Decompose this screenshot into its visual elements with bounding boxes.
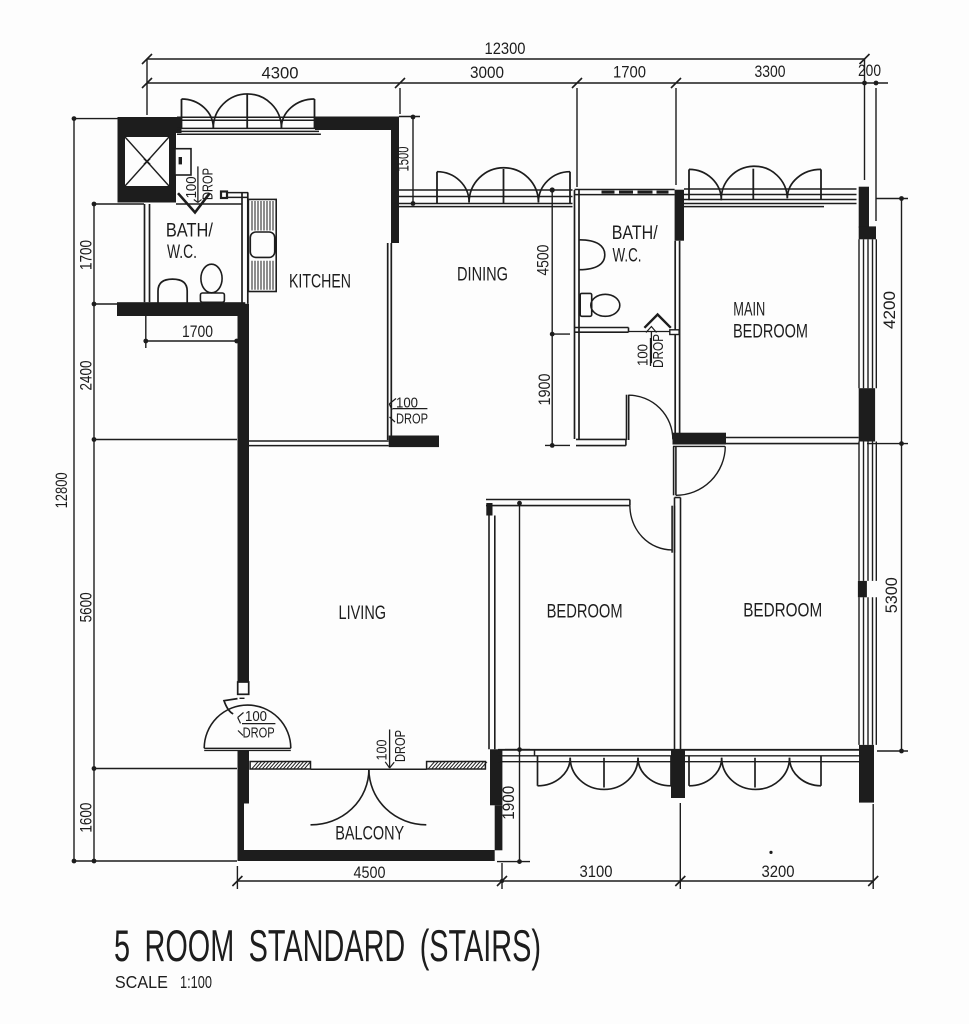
svg-text:BATH/: BATH/	[612, 222, 658, 244]
svg-text:4500: 4500	[535, 245, 553, 276]
svg-text:1600: 1600	[78, 803, 96, 833]
svg-text:3300: 3300	[755, 63, 786, 81]
svg-text:1700: 1700	[182, 323, 213, 341]
svg-text:12300: 12300	[485, 40, 526, 58]
svg-text:BEDROOM: BEDROOM	[743, 600, 822, 622]
svg-text:4500: 4500	[354, 864, 386, 882]
svg-text:BEDROOM: BEDROOM	[547, 601, 623, 623]
svg-text:MAIN: MAIN	[733, 299, 765, 321]
svg-text:BEDROOM: BEDROOM	[733, 320, 808, 342]
svg-text:SCALE: SCALE	[115, 972, 168, 992]
svg-text:1:100: 1:100	[180, 972, 212, 992]
svg-text:BATH/: BATH/	[166, 220, 213, 242]
svg-text:2400: 2400	[78, 361, 96, 391]
svg-text:DINING: DINING	[457, 264, 508, 286]
svg-text:100: 100	[635, 344, 652, 366]
svg-text:4200: 4200	[881, 291, 899, 329]
svg-text:3100: 3100	[580, 863, 613, 881]
svg-text:4300: 4300	[262, 65, 299, 83]
svg-text:3000: 3000	[470, 64, 504, 82]
svg-text:200: 200	[858, 62, 881, 80]
svg-text:DROP: DROP	[243, 725, 275, 742]
svg-text:5 ROOM STANDARD (STAIRS): 5 ROOM STANDARD (STAIRS)	[114, 922, 541, 971]
svg-text:5300: 5300	[883, 577, 901, 613]
svg-text:100: 100	[374, 740, 391, 761]
svg-text:DROP: DROP	[200, 168, 217, 200]
svg-text:DROP: DROP	[392, 730, 409, 762]
svg-text:3200: 3200	[762, 863, 795, 881]
svg-text:100: 100	[245, 708, 267, 725]
svg-text:W.C.: W.C.	[613, 245, 642, 267]
svg-text:1700: 1700	[613, 64, 646, 82]
svg-text:W.C.: W.C.	[167, 241, 197, 263]
svg-text:DROP: DROP	[650, 334, 667, 368]
svg-text:5600: 5600	[78, 592, 96, 622]
svg-text:1700: 1700	[78, 240, 96, 270]
svg-text:1900: 1900	[536, 374, 554, 406]
svg-text:12800: 12800	[53, 472, 71, 508]
svg-text:1900: 1900	[500, 786, 518, 820]
svg-text:DROP: DROP	[396, 411, 428, 428]
svg-text:BALCONY: BALCONY	[335, 823, 404, 845]
svg-text:1500: 1500	[395, 147, 413, 172]
svg-text:KITCHEN: KITCHEN	[289, 271, 351, 293]
svg-text:LIVING: LIVING	[339, 602, 387, 624]
